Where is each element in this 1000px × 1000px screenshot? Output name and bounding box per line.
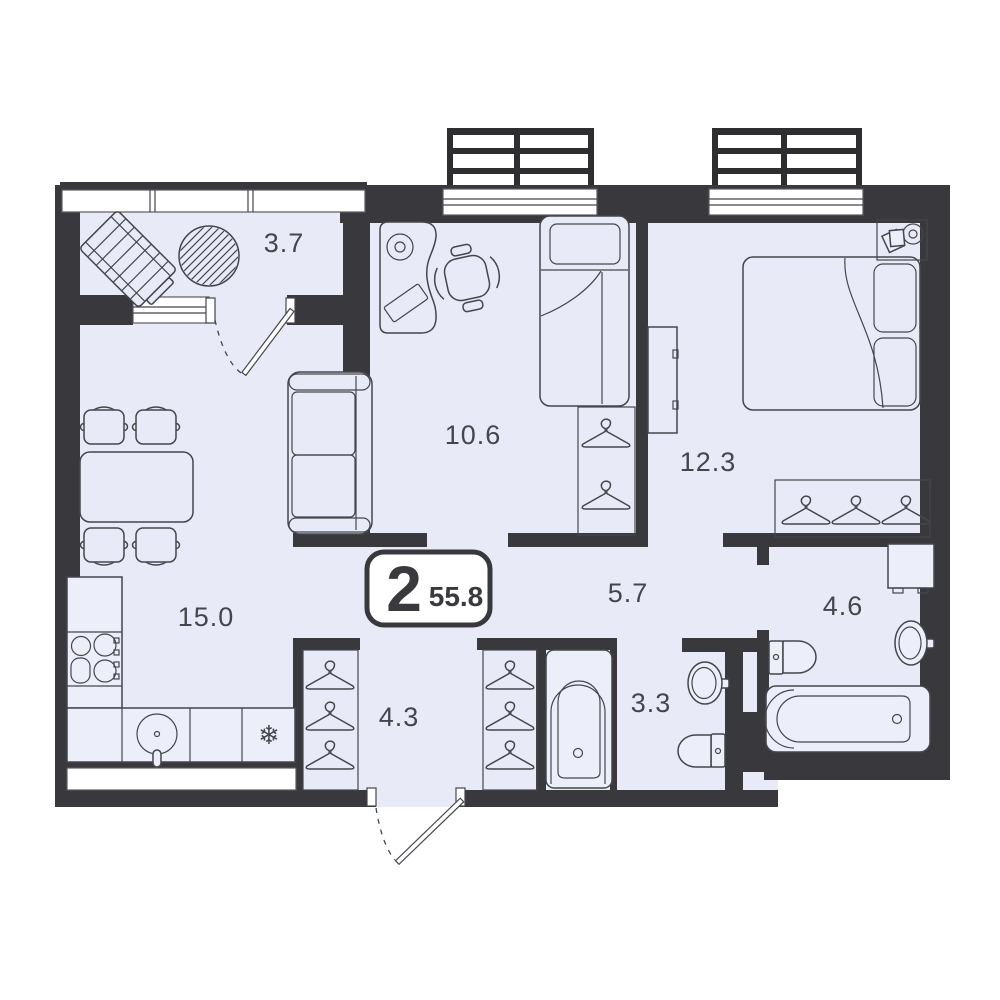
dining-chair (133, 528, 180, 565)
fridge-snowflake-icon: ❄ (258, 721, 280, 751)
floor-plan: ❄ (0, 0, 1000, 1000)
room-label-kitchen-living: 15.0 (178, 602, 235, 632)
room-label-hallway: 4.3 (379, 702, 420, 732)
window-master-room (709, 189, 863, 215)
cabinet (648, 327, 678, 433)
room-label-bathroom: 3.3 (631, 688, 672, 718)
balcony-glazing (62, 190, 365, 212)
badge-room-count: 2 (386, 553, 422, 625)
room-label-master-room: 12.3 (680, 447, 737, 477)
washing-machine (888, 544, 934, 593)
room-label-balcony: 3.7 (264, 228, 305, 258)
dining-chair (133, 407, 180, 444)
window-children-room (443, 189, 597, 215)
room-label-corridor: 5.7 (608, 578, 649, 608)
dining-table (80, 452, 193, 522)
kitchen-low-glazing (67, 768, 296, 790)
bathtub-horizontal (765, 686, 930, 752)
sofa (288, 372, 372, 534)
apartment-badge: 2 55.8 (367, 552, 490, 625)
entrance-door (367, 788, 465, 864)
floor-plan-page: ❄ (0, 0, 1000, 1000)
room-label-bathroom-second: 4.6 (823, 591, 864, 621)
toilet-33 (678, 734, 725, 767)
double-bed (743, 257, 920, 410)
toilet-46 (769, 641, 816, 674)
badge-total-area: 55.8 (429, 581, 484, 612)
bathtub-vertical (546, 650, 612, 788)
room-label-children-room: 10.6 (445, 420, 502, 450)
dining-chair (81, 528, 128, 565)
desk (380, 222, 436, 333)
railing-right (712, 128, 862, 185)
dining-chair (81, 407, 128, 444)
single-bed (540, 216, 629, 406)
railing-left (447, 128, 594, 185)
